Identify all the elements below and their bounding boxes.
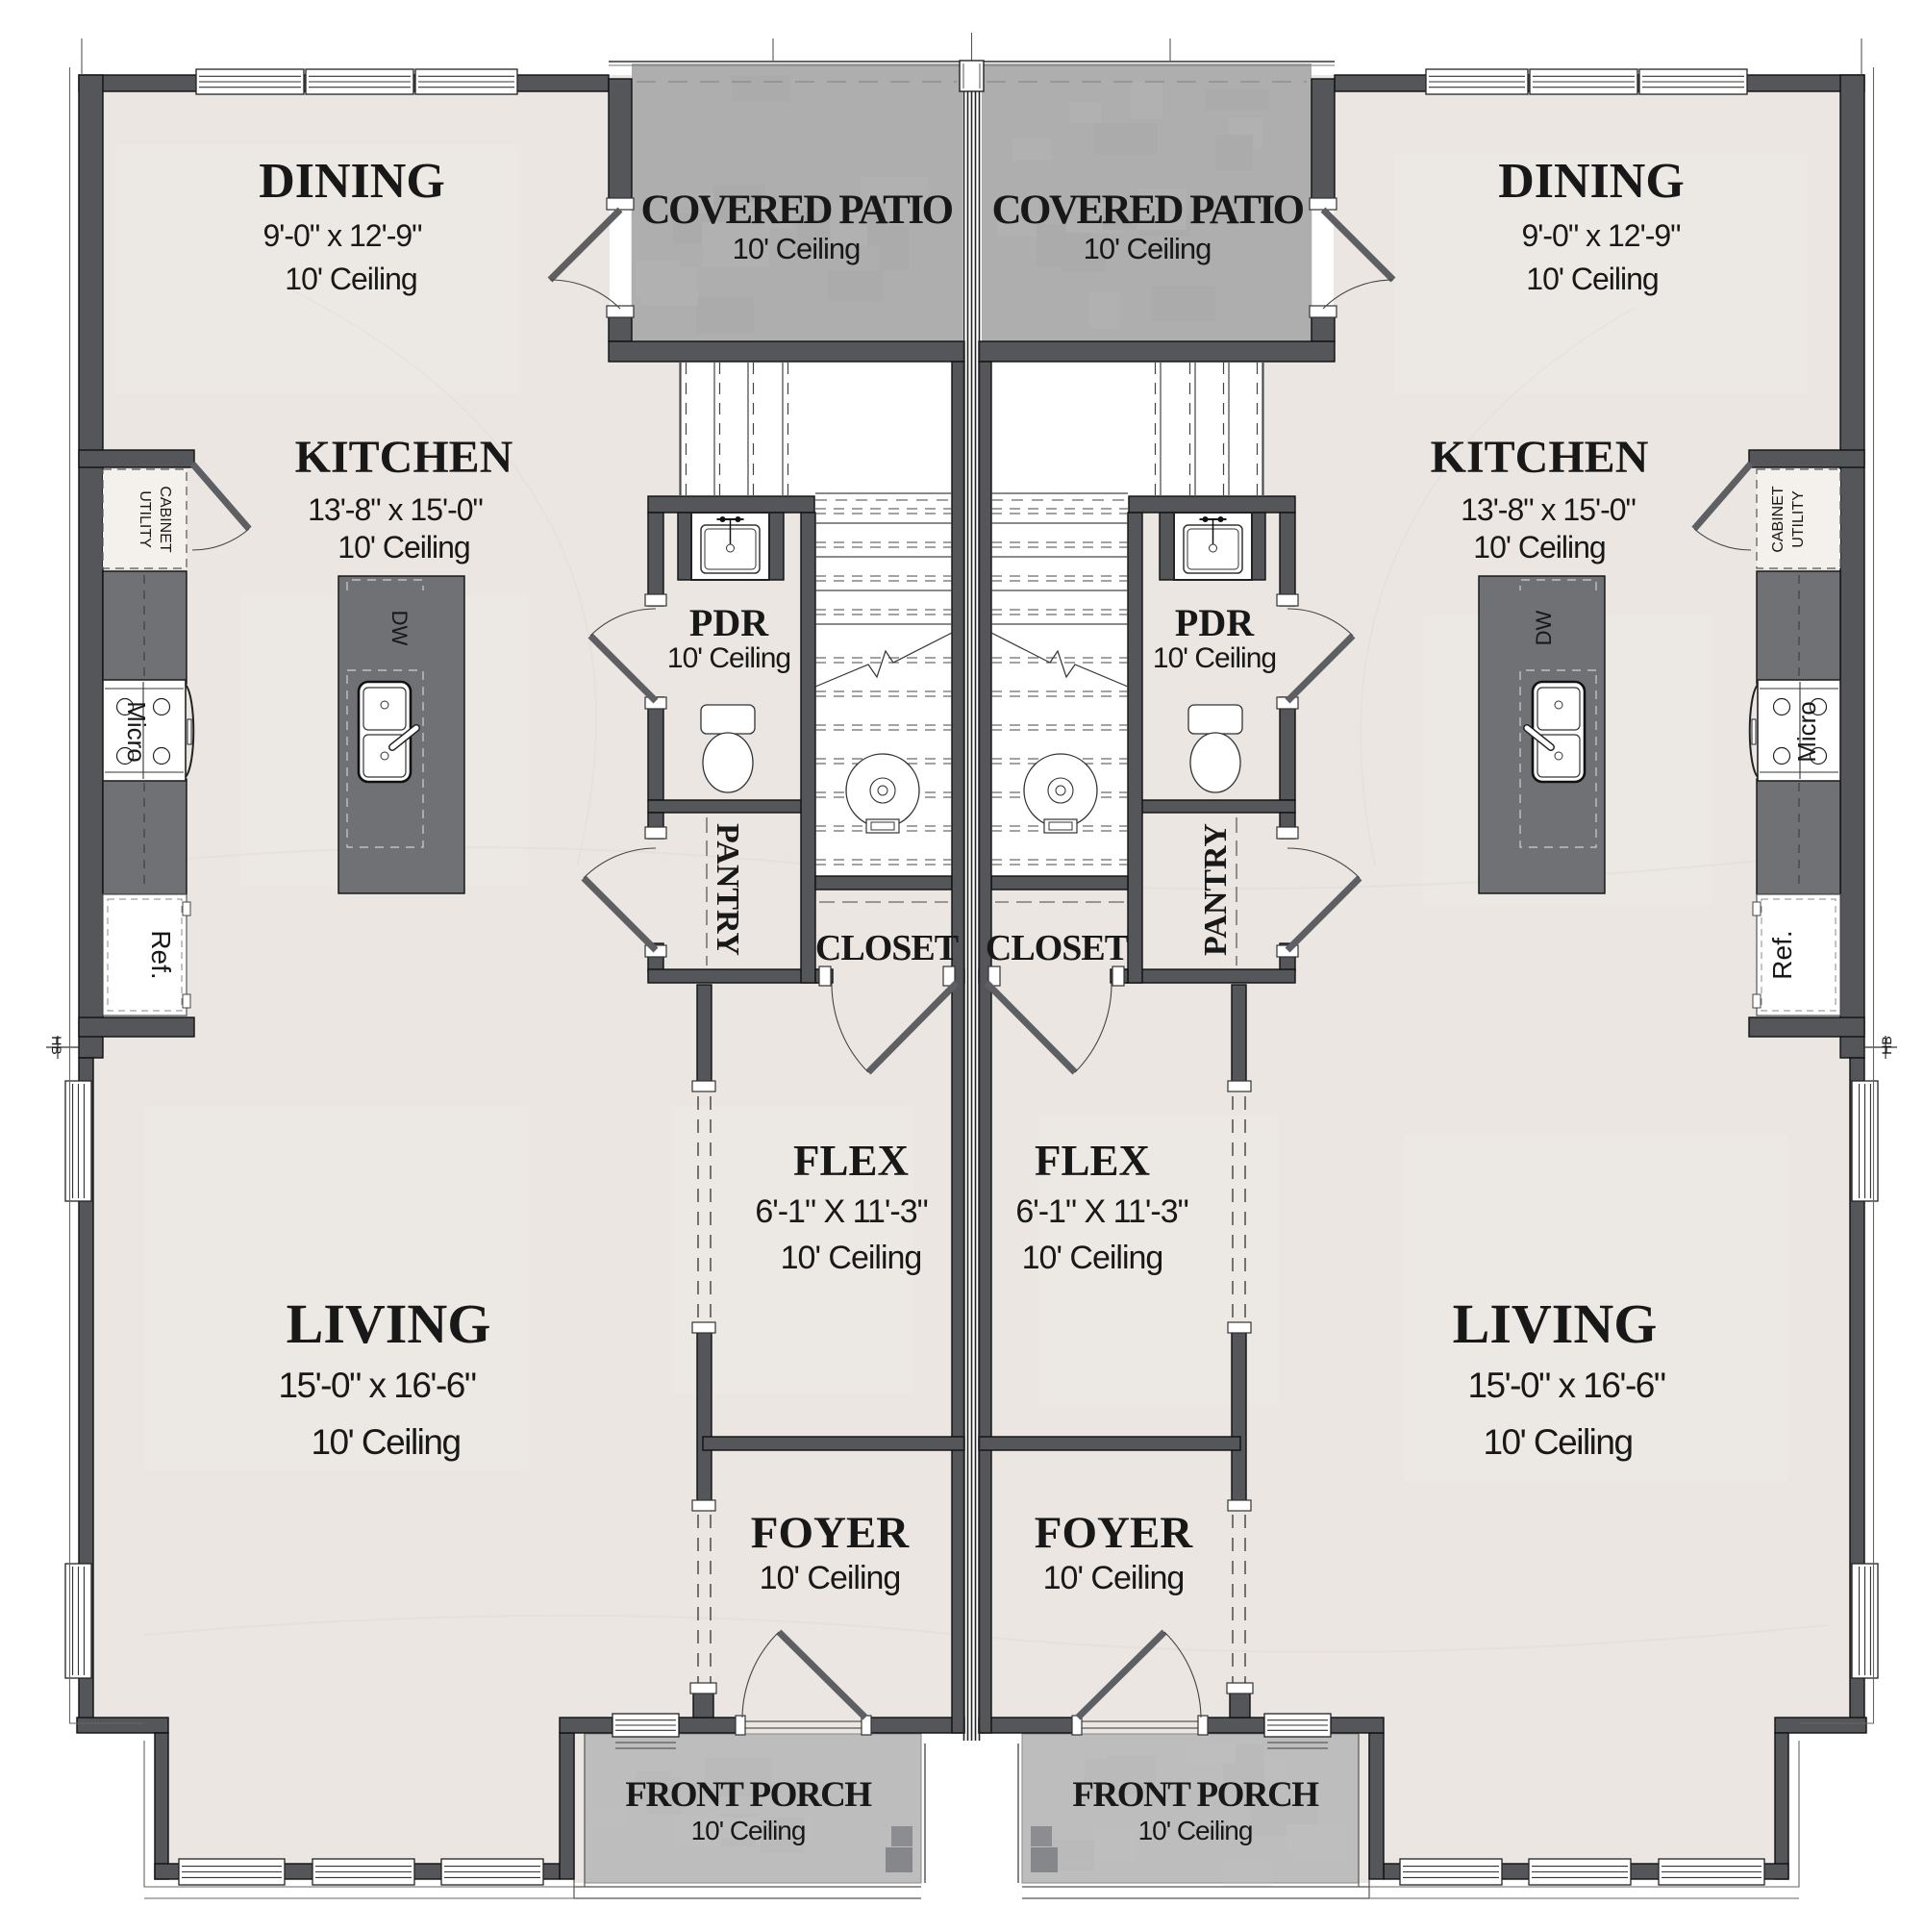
svg-text:13'-8" x 15'-0": 13'-8" x 15'-0": [1461, 492, 1636, 527]
svg-text:10' Ceiling: 10' Ceiling: [733, 232, 861, 265]
svg-text:10' Ceiling: 10' Ceiling: [1022, 1240, 1163, 1276]
svg-text:PANTRY: PANTRY: [710, 823, 745, 956]
svg-text:15'-0" x 16'-6": 15'-0" x 16'-6": [1467, 1366, 1664, 1405]
svg-text:10' Ceiling: 10' Ceiling: [311, 1422, 460, 1462]
svg-text:Micro: Micro: [122, 701, 151, 763]
svg-text:9'-0" x 12'-9": 9'-0" x 12'-9": [1521, 218, 1680, 253]
svg-text:CABINET: CABINET: [157, 486, 173, 553]
svg-text:9'-0" x 12'-9": 9'-0" x 12'-9": [262, 218, 421, 253]
svg-text:10' Ceiling: 10' Ceiling: [760, 1560, 901, 1596]
svg-text:COVERED PATIO: COVERED PATIO: [640, 188, 952, 233]
svg-text:10' Ceiling: 10' Ceiling: [1043, 1560, 1185, 1596]
svg-text:10' Ceiling: 10' Ceiling: [781, 1240, 922, 1276]
svg-text:LIVING: LIVING: [1453, 1292, 1658, 1355]
svg-text:10' Ceiling: 10' Ceiling: [285, 262, 416, 296]
svg-text:15'-0" x 16'-6": 15'-0" x 16'-6": [278, 1366, 475, 1405]
svg-text:Ref.: Ref.: [146, 930, 176, 979]
svg-text:KITCHEN: KITCHEN: [295, 432, 513, 483]
svg-text:Ref.: Ref.: [1767, 930, 1797, 979]
svg-text:13'-8" x 15'-0": 13'-8" x 15'-0": [308, 492, 483, 527]
svg-text:6'-1" X 11'-3": 6'-1" X 11'-3": [1015, 1193, 1187, 1230]
svg-text:10' Ceiling: 10' Ceiling: [1138, 1816, 1253, 1845]
svg-text:CLOSET: CLOSET: [986, 928, 1129, 968]
svg-text:FRONT PORCH: FRONT PORCH: [1072, 1775, 1319, 1815]
svg-text:PDR: PDR: [689, 601, 769, 644]
svg-text:10' Ceiling: 10' Ceiling: [1153, 642, 1276, 674]
svg-text:DW: DW: [1532, 610, 1556, 645]
svg-text:COVERED PATIO: COVERED PATIO: [991, 188, 1303, 233]
svg-text:UTILITY: UTILITY: [1790, 490, 1807, 548]
svg-text:10' Ceiling: 10' Ceiling: [691, 1816, 806, 1845]
svg-text:FOYER: FOYER: [1035, 1508, 1194, 1558]
svg-text:10' Ceiling: 10' Ceiling: [337, 530, 469, 565]
svg-text:10' Ceiling: 10' Ceiling: [1526, 262, 1658, 296]
svg-text:HB: HB: [1879, 1036, 1894, 1054]
svg-text:CABINET: CABINET: [1770, 486, 1787, 553]
svg-text:FLEX: FLEX: [793, 1137, 909, 1185]
svg-text:PDR: PDR: [1175, 601, 1255, 644]
svg-text:FRONT PORCH: FRONT PORCH: [625, 1775, 872, 1815]
svg-text:HB: HB: [49, 1036, 64, 1054]
svg-text:10' Ceiling: 10' Ceiling: [1084, 232, 1212, 265]
svg-text:KITCHEN: KITCHEN: [1431, 432, 1649, 483]
svg-text:DW: DW: [387, 611, 412, 646]
svg-text:FLEX: FLEX: [1035, 1137, 1150, 1185]
svg-text:10' Ceiling: 10' Ceiling: [1473, 530, 1605, 565]
svg-text:10' Ceiling: 10' Ceiling: [667, 642, 790, 674]
svg-text:DINING: DINING: [1498, 154, 1685, 209]
svg-text:LIVING: LIVING: [287, 1292, 491, 1355]
svg-text:DINING: DINING: [259, 154, 445, 209]
svg-text:10' Ceiling: 10' Ceiling: [1483, 1422, 1632, 1462]
svg-text:6'-1" X 11'-3": 6'-1" X 11'-3": [755, 1193, 927, 1230]
svg-text:FOYER: FOYER: [751, 1508, 911, 1558]
svg-text:Micro: Micro: [1792, 701, 1821, 763]
svg-text:PANTRY: PANTRY: [1198, 823, 1234, 956]
svg-text:CLOSET: CLOSET: [815, 928, 959, 968]
svg-text:UTILITY: UTILITY: [137, 490, 153, 548]
